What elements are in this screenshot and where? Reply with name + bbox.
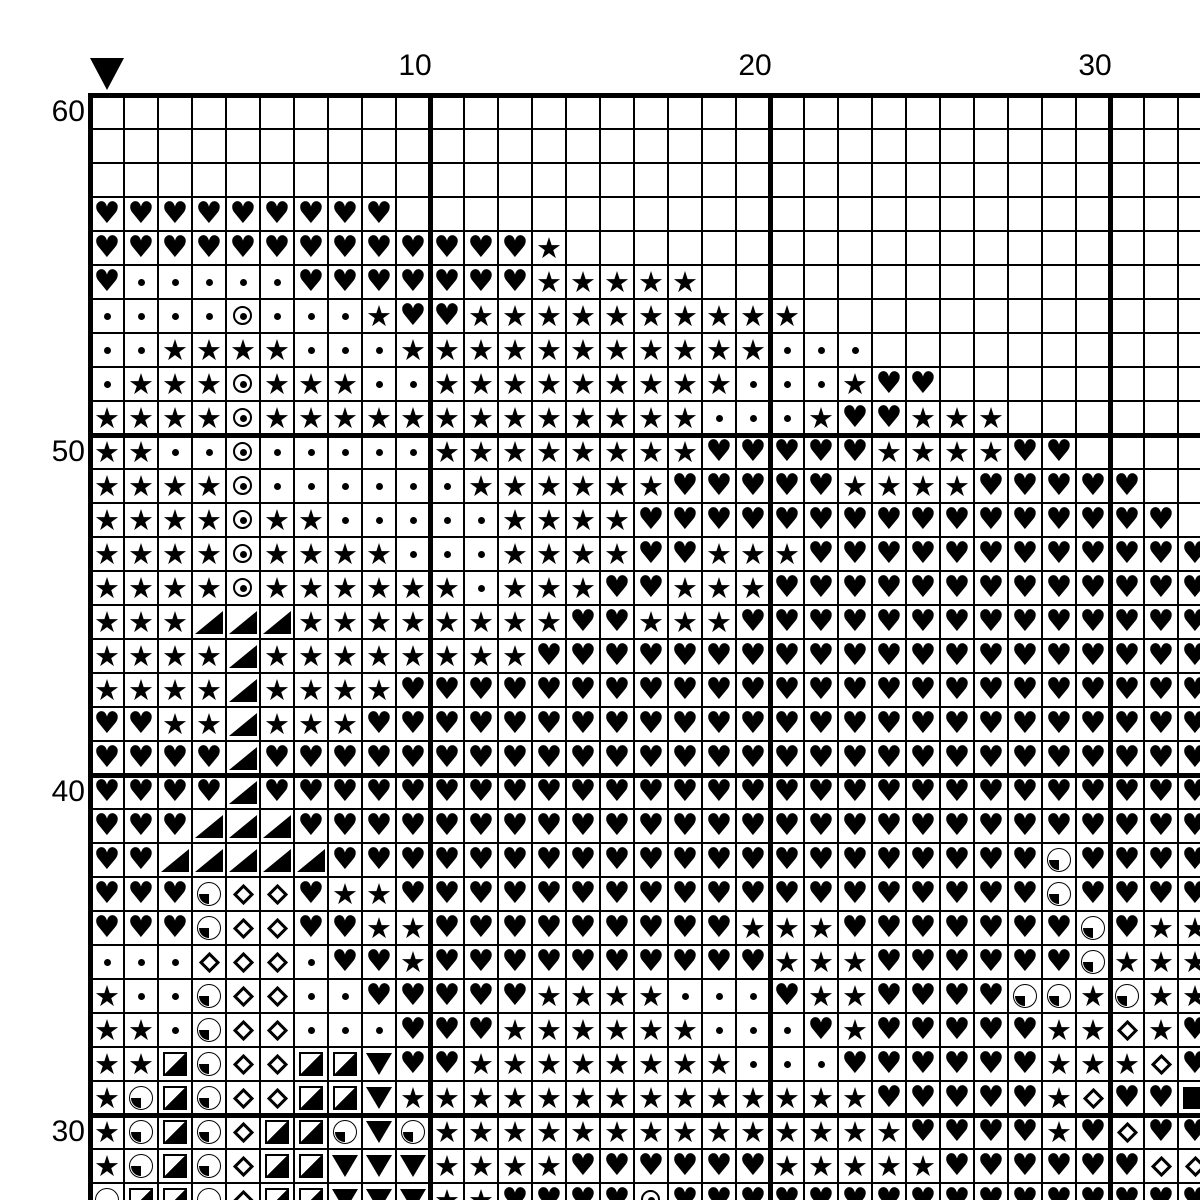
- grid-cell-heart: ♥: [838, 605, 872, 639]
- grid-cell-dot: [804, 1047, 838, 1081]
- grid-cell-quarter-pie-circle: [1110, 979, 1144, 1013]
- grid-cell-heart: ♥: [498, 979, 532, 1013]
- grid-cell-heart: ♥: [362, 843, 396, 877]
- grid-cell-heart: ♥: [1008, 1047, 1042, 1081]
- grid-line-horizontal: [88, 332, 1200, 334]
- grid-cell-star: ★: [396, 571, 430, 605]
- grid-cell-heart: ♥: [702, 707, 736, 741]
- grid-cell-heart: ♥: [498, 741, 532, 775]
- grid-cell-heart: ♥: [702, 673, 736, 707]
- grid-cell-heart: ♥: [396, 1013, 430, 1047]
- grid-cell-heart: ♥: [838, 707, 872, 741]
- grid-cell-heart: ♥: [532, 707, 566, 741]
- grid-cell-heart: ♥: [294, 197, 328, 231]
- grid-cell-heart: ♥: [634, 673, 668, 707]
- grid-cell-half-filled-square: [260, 1115, 294, 1149]
- grid-cell-quarter-pie-circle: [1076, 911, 1110, 945]
- grid-cell-heart: ♥: [1008, 707, 1042, 741]
- grid-cell-star: ★: [940, 435, 974, 469]
- grid-cell-heart: ♥: [124, 877, 158, 911]
- grid-cell-heart: ♥: [906, 809, 940, 843]
- grid-cell-heart: ♥: [838, 435, 872, 469]
- grid-cell-star: ★: [634, 299, 668, 333]
- grid-cell-heart: ♥: [838, 571, 872, 605]
- grid-cell-star: ★: [90, 605, 124, 639]
- grid-cell-star: ★: [362, 401, 396, 435]
- grid-cell-heart: ♥: [328, 775, 362, 809]
- grid-cell-half-filled-square: [158, 1115, 192, 1149]
- grid-cell-circled-dot: [226, 367, 260, 401]
- grid-cell-heart: ♥: [1144, 1183, 1178, 1200]
- grid-line-horizontal: [88, 1080, 1200, 1082]
- grid-cell-heart: ♥: [838, 639, 872, 673]
- grid-cell-star: ★: [668, 571, 702, 605]
- grid-cell-star: ★: [90, 639, 124, 673]
- grid-cell-heart: ♥: [634, 503, 668, 537]
- grid-cell-star: ★: [294, 503, 328, 537]
- grid-cell-star: ★: [600, 401, 634, 435]
- grid-line-horizontal: [88, 298, 1200, 300]
- grid-cell-dot: [124, 333, 158, 367]
- grid-cell-heart: ♥: [1076, 503, 1110, 537]
- grid-cell-dot: [328, 503, 362, 537]
- grid-cell-star: ★: [498, 1149, 532, 1183]
- grid-cell-heart: ♥: [906, 911, 940, 945]
- grid-line-vertical: [463, 93, 465, 1200]
- grid-cell-heart: ♥: [1008, 537, 1042, 571]
- grid-cell-heart: ♥: [1042, 1149, 1076, 1183]
- grid-cell-heart: ♥: [974, 1013, 1008, 1047]
- grid-cell-quarter-pie-circle: [1042, 979, 1076, 1013]
- grid-cell-star: ★: [396, 401, 430, 435]
- grid-cell-dot: [294, 945, 328, 979]
- grid-line-vertical: [735, 93, 737, 1200]
- grid-cell-heart: ♥: [804, 843, 838, 877]
- grid-cell-star: ★: [464, 1183, 498, 1200]
- grid-cell-star: ★: [532, 537, 566, 571]
- grid-cell-lower-right-triangle: [226, 741, 260, 775]
- grid-cell-star: ★: [804, 945, 838, 979]
- grid-cell-heart: ♥: [294, 877, 328, 911]
- grid-cell-dot: [90, 299, 124, 333]
- grid-cell-heart: ♥: [1076, 1149, 1110, 1183]
- grid-cell-heart: ♥: [1042, 741, 1076, 775]
- grid-cell-heart: ♥: [328, 843, 362, 877]
- grid-cell-dot: [736, 367, 770, 401]
- grid-cell-dot: [192, 299, 226, 333]
- grid-cell-heart: ♥: [872, 1013, 906, 1047]
- grid-cell-star: ★: [532, 979, 566, 1013]
- grid-cell-heart: ♥: [90, 231, 124, 265]
- grid-cell-heart: ♥: [872, 571, 906, 605]
- grid-cell-quarter-pie-circle: [1042, 843, 1076, 877]
- grid-cell-heart: ♥: [906, 367, 940, 401]
- grid-cell-star: ★: [566, 299, 600, 333]
- grid-cell-dot: [838, 333, 872, 367]
- grid-line-horizontal: [88, 842, 1200, 844]
- grid-cell-lower-right-triangle: [226, 809, 260, 843]
- grid-cell-heart: ♥: [736, 945, 770, 979]
- grid-cell-dot: [192, 435, 226, 469]
- grid-cell-half-filled-square: [158, 1183, 192, 1200]
- grid-cell-star: ★: [566, 1013, 600, 1047]
- grid-cell-dot: [362, 469, 396, 503]
- grid-cell-heart: ♥: [736, 877, 770, 911]
- grid-cell-star: ★: [906, 401, 940, 435]
- grid-cell-heart: ♥: [1042, 1183, 1076, 1200]
- grid-cell-quarter-pie-circle: [90, 1183, 124, 1200]
- grid-cell-half-filled-square: [294, 1081, 328, 1115]
- grid-cell-heart: ♥: [940, 877, 974, 911]
- grid-cell-star: ★: [464, 1081, 498, 1115]
- grid-cell-star: ★: [1110, 945, 1144, 979]
- grid-cell-quarter-pie-circle: [124, 1115, 158, 1149]
- grid-cell-half-filled-square: [260, 1183, 294, 1200]
- grid-cell-star: ★: [362, 911, 396, 945]
- grid-cell-heart: ♥: [906, 503, 940, 537]
- grid-cell-star: ★: [634, 333, 668, 367]
- grid-cell-heart: ♥: [702, 877, 736, 911]
- grid-cell-star: ★: [1042, 1115, 1076, 1149]
- grid-cell-star: ★: [430, 367, 464, 401]
- grid-cell-heart: ♥: [396, 231, 430, 265]
- grid-cell-dot: [294, 435, 328, 469]
- grid-cell-star: ★: [770, 911, 804, 945]
- grid-cell-dot: [430, 503, 464, 537]
- grid-cell-heart: ♥: [532, 843, 566, 877]
- grid-cell-heart: ♥: [770, 809, 804, 843]
- grid-line-vertical: [497, 93, 499, 1200]
- grid-cell-heart: ♥: [90, 911, 124, 945]
- grid-cell-heart: ♥: [838, 537, 872, 571]
- grid-cell-star: ★: [600, 265, 634, 299]
- grid-line-horizontal: [88, 366, 1200, 368]
- grid-cell-quarter-pie-circle: [1008, 979, 1042, 1013]
- grid-cell-star: ★: [430, 639, 464, 673]
- grid-cell-star: ★: [600, 299, 634, 333]
- grid-cell-heart: ♥: [260, 231, 294, 265]
- grid-cell-heart: ♥: [396, 707, 430, 741]
- grid-cell-star: ★: [294, 537, 328, 571]
- grid-cell-heart: ♥: [566, 1149, 600, 1183]
- grid-cell-star: ★: [192, 333, 226, 367]
- grid-cell-heart: ♥: [634, 775, 668, 809]
- grid-cell-circled-dot: [226, 299, 260, 333]
- grid-cell-heart: ♥: [940, 503, 974, 537]
- grid-cell-heart: ♥: [1076, 571, 1110, 605]
- grid-cell-heart: ♥: [430, 673, 464, 707]
- grid-cell-star: ★: [600, 435, 634, 469]
- grid-cell-star: ★: [668, 1115, 702, 1149]
- grid-cell-quarter-pie-circle: [328, 1115, 362, 1149]
- grid-cell-heart: ♥: [940, 741, 974, 775]
- grid-cell-heart: ♥: [838, 1047, 872, 1081]
- grid-cell-heart: ♥: [1008, 571, 1042, 605]
- grid-cell-heart: ♥: [532, 639, 566, 673]
- grid-cell-heart: ♥: [396, 1047, 430, 1081]
- grid-cell-star: ★: [838, 1081, 872, 1115]
- grid-cell-dot: [362, 1013, 396, 1047]
- grid-cell-heart: ♥: [906, 775, 940, 809]
- grid-cell-heart: ♥: [974, 877, 1008, 911]
- grid-cell-star: ★: [770, 1115, 804, 1149]
- grid-cell-star: ★: [566, 571, 600, 605]
- grid-cell-star: ★: [90, 1081, 124, 1115]
- grid-cell-star: ★: [838, 1149, 872, 1183]
- grid-cell-star: ★: [1042, 1081, 1076, 1115]
- grid-cell-heart: ♥: [1178, 639, 1200, 673]
- row-label-30: 30: [0, 1115, 85, 1149]
- grid-cell-heart: ♥: [1144, 571, 1178, 605]
- grid-cell-heart: ♥: [1144, 639, 1178, 673]
- grid-cell-dot: [396, 537, 430, 571]
- grid-cell-heart: ♥: [974, 979, 1008, 1013]
- grid-cell-half-filled-square: [294, 1115, 328, 1149]
- grid-cell-star: ★: [1144, 1013, 1178, 1047]
- grid-cell-heart: ♥: [294, 911, 328, 945]
- grid-cell-star: ★: [498, 401, 532, 435]
- grid-cell-star: ★: [600, 1081, 634, 1115]
- grid-cell-heart: ♥: [1110, 1081, 1144, 1115]
- grid-cell-heart: ♥: [1144, 809, 1178, 843]
- grid-cell-heart: ♥: [1076, 1115, 1110, 1149]
- grid-cell-star: ★: [464, 401, 498, 435]
- grid-cell-circled-dot: [226, 401, 260, 435]
- grid-line-vertical: [803, 93, 805, 1200]
- grid-cell-star: ★: [702, 1047, 736, 1081]
- grid-cell-star: ★: [362, 299, 396, 333]
- grid-cell-heart: ♥: [940, 707, 974, 741]
- grid-cell-diamond-outline: [226, 1183, 260, 1200]
- grid-cell-star: ★: [158, 469, 192, 503]
- grid-cell-half-filled-square: [294, 1183, 328, 1200]
- grid-cell-heart: ♥: [906, 707, 940, 741]
- grid-cell-star: ★: [328, 605, 362, 639]
- grid-cell-star: ★: [124, 1013, 158, 1047]
- grid-cell-heart: ♥: [940, 843, 974, 877]
- grid-cell-star: ★: [668, 1047, 702, 1081]
- grid-cell-star: ★: [90, 435, 124, 469]
- grid-cell-heart: ♥: [906, 605, 940, 639]
- grid-cell-star: ★: [736, 299, 770, 333]
- grid-cell-down-triangle: [362, 1081, 396, 1115]
- grid-cell-star: ★: [498, 1115, 532, 1149]
- grid-cell-star: ★: [362, 571, 396, 605]
- grid-cell-star: ★: [430, 571, 464, 605]
- grid-cell-star: ★: [260, 639, 294, 673]
- grid-cell-lower-right-triangle: [192, 809, 226, 843]
- grid-cell-diamond-outline: [226, 979, 260, 1013]
- grid-cell-star: ★: [158, 571, 192, 605]
- grid-cell-heart: ♥: [804, 503, 838, 537]
- grid-cell-heart: ♥: [362, 809, 396, 843]
- grid-cell-heart: ♥: [804, 877, 838, 911]
- grid-cell-heart: ♥: [362, 707, 396, 741]
- grid-cell-heart: ♥: [464, 775, 498, 809]
- grid-cell-star: ★: [906, 435, 940, 469]
- grid-cell-heart: ♥: [804, 435, 838, 469]
- grid-cell-lower-right-triangle: [260, 605, 294, 639]
- grid-cell-star: ★: [464, 639, 498, 673]
- grid-cell-heart: ♥: [464, 877, 498, 911]
- grid-cell-dot: [770, 367, 804, 401]
- grid-cell-heart: ♥: [124, 741, 158, 775]
- grid-cell-heart: ♥: [532, 877, 566, 911]
- grid-cell-star: ★: [260, 367, 294, 401]
- grid-cell-heart: ♥: [872, 741, 906, 775]
- grid-cell-star: ★: [430, 605, 464, 639]
- grid-line-vertical: [157, 93, 159, 1200]
- grid-cell-heart: ♥: [1008, 1115, 1042, 1149]
- grid-cell-diamond-outline: [226, 1115, 260, 1149]
- grid-cell-heart: ♥: [974, 809, 1008, 843]
- grid-line-horizontal: [88, 93, 1200, 98]
- grid-line-horizontal: [88, 1012, 1200, 1014]
- grid-cell-heart: ♥: [294, 265, 328, 299]
- row-label-50: 50: [0, 435, 85, 469]
- grid-cell-heart: ♥: [872, 1183, 906, 1200]
- grid-cell-heart: ♥: [362, 231, 396, 265]
- grid-cell-star: ★: [294, 571, 328, 605]
- grid-cell-lower-right-triangle: [226, 673, 260, 707]
- grid-cell-heart: ♥: [1042, 537, 1076, 571]
- grid-cell-heart: ♥: [90, 197, 124, 231]
- grid-cell-star: ★: [566, 469, 600, 503]
- grid-cell-heart: ♥: [668, 945, 702, 979]
- grid-cell-star: ★: [124, 639, 158, 673]
- grid-cell-heart: ♥: [532, 775, 566, 809]
- grid-line-horizontal: [88, 264, 1200, 266]
- grid-cell-heart: ♥: [600, 707, 634, 741]
- grid-cell-dot: [260, 265, 294, 299]
- grid-cell-star: ★: [158, 605, 192, 639]
- grid-cell-star: ★: [498, 537, 532, 571]
- grid-cell-star: ★: [736, 571, 770, 605]
- grid-cell-heart: ♥: [1178, 809, 1200, 843]
- grid-cell-circled-dot: [226, 503, 260, 537]
- grid-cell-heart: ♥: [634, 911, 668, 945]
- grid-cell-heart: ♥: [1042, 639, 1076, 673]
- grid-cell-heart: ♥: [668, 673, 702, 707]
- grid-cell-heart: ♥: [1110, 809, 1144, 843]
- grid-cell-star: ★: [192, 571, 226, 605]
- grid-cell-star: ★: [192, 673, 226, 707]
- grid-cell-star: ★: [736, 1115, 770, 1149]
- grid-cell-down-triangle: [328, 1149, 362, 1183]
- grid-cell-heart: ♥: [362, 775, 396, 809]
- grid-cell-star: ★: [736, 537, 770, 571]
- grid-cell-heart: ♥: [158, 231, 192, 265]
- grid-cell-dot: [294, 299, 328, 333]
- grid-cell-dot: [124, 265, 158, 299]
- grid-cell-heart: ♥: [940, 1149, 974, 1183]
- grid-cell-star: ★: [124, 537, 158, 571]
- grid-cell-heart: ♥: [804, 673, 838, 707]
- grid-cell-dot: [736, 979, 770, 1013]
- grid-cell-star: ★: [1076, 1013, 1110, 1047]
- grid-cell-heart: ♥: [124, 809, 158, 843]
- grid-cell-dot: [736, 1013, 770, 1047]
- grid-line-horizontal: [88, 1148, 1200, 1150]
- grid-cell-heart: ♥: [430, 843, 464, 877]
- grid-cell-half-filled-square: [294, 1047, 328, 1081]
- grid-cell-heart: ♥: [1178, 775, 1200, 809]
- grid-cell-heart: ♥: [940, 911, 974, 945]
- grid-cell-heart: ♥: [1110, 1149, 1144, 1183]
- grid-cell-diamond-outline: [226, 1149, 260, 1183]
- grid-cell-heart: ♥: [1144, 1081, 1178, 1115]
- grid-cell-heart: ♥: [702, 911, 736, 945]
- grid-cell-heart: ♥: [872, 877, 906, 911]
- grid-cell-star: ★: [464, 299, 498, 333]
- grid-cell-star: ★: [1178, 945, 1200, 979]
- grid-cell-star: ★: [498, 605, 532, 639]
- grid-cell-heart: ♥: [362, 265, 396, 299]
- grid-cell-star: ★: [702, 571, 736, 605]
- grid-cell-diamond-outline: [226, 1081, 260, 1115]
- grid-cell-quarter-pie-circle: [192, 979, 226, 1013]
- grid-cell-heart: ♥: [1008, 945, 1042, 979]
- grid-cell-star: ★: [328, 877, 362, 911]
- grid-cell-heart: ♥: [872, 1081, 906, 1115]
- grid-cell-star: ★: [124, 435, 158, 469]
- grid-cell-star: ★: [838, 1013, 872, 1047]
- grid-cell-heart: ♥: [1076, 673, 1110, 707]
- grid-cell-heart: ♥: [974, 707, 1008, 741]
- grid-cell-heart: ♥: [430, 707, 464, 741]
- grid-cell-star: ★: [804, 1149, 838, 1183]
- grid-cell-star: ★: [566, 435, 600, 469]
- grid-cell-star: ★: [158, 673, 192, 707]
- grid-cell-diamond-outline: [226, 877, 260, 911]
- grid-cell-heart: ♥: [396, 299, 430, 333]
- grid-cell-heart: ♥: [872, 979, 906, 1013]
- grid-cell-star: ★: [804, 1115, 838, 1149]
- grid-cell-star: ★: [600, 537, 634, 571]
- grid-cell-heart: ♥: [1110, 673, 1144, 707]
- grid-cell-heart: ♥: [872, 707, 906, 741]
- grid-cell-heart: ♥: [634, 571, 668, 605]
- grid-cell-heart: ♥: [1042, 571, 1076, 605]
- grid-cell-heart: ♥: [430, 979, 464, 1013]
- grid-cell-star: ★: [906, 1149, 940, 1183]
- grid-cell-heart: ♥: [974, 1183, 1008, 1200]
- grid-cell-heart: ♥: [566, 605, 600, 639]
- grid-line-horizontal: [88, 128, 1200, 130]
- grid-cell-star: ★: [736, 911, 770, 945]
- grid-line-horizontal: [88, 468, 1200, 470]
- grid-cell-star: ★: [804, 1081, 838, 1115]
- grid-cell-heart: ♥: [1144, 1115, 1178, 1149]
- grid-cell-star: ★: [192, 469, 226, 503]
- grid-cell-heart: ♥: [566, 809, 600, 843]
- grid-cell-heart: ♥: [940, 1081, 974, 1115]
- grid-cell-heart: ♥: [1008, 843, 1042, 877]
- grid-cell-star: ★: [90, 1115, 124, 1149]
- grid-cell-heart: ♥: [906, 1081, 940, 1115]
- grid-cell-heart: ♥: [906, 673, 940, 707]
- grid-cell-star: ★: [90, 571, 124, 605]
- grid-cell-star: ★: [464, 469, 498, 503]
- grid-cell-star: ★: [396, 605, 430, 639]
- grid-cell-star: ★: [90, 537, 124, 571]
- grid-cell-heart: ♥: [600, 1183, 634, 1200]
- grid-cell-star: ★: [600, 1013, 634, 1047]
- grid-cell-star: ★: [192, 401, 226, 435]
- grid-cell-star: ★: [770, 945, 804, 979]
- grid-cell-heart: ♥: [532, 1183, 566, 1200]
- grid-cell-dot: [770, 401, 804, 435]
